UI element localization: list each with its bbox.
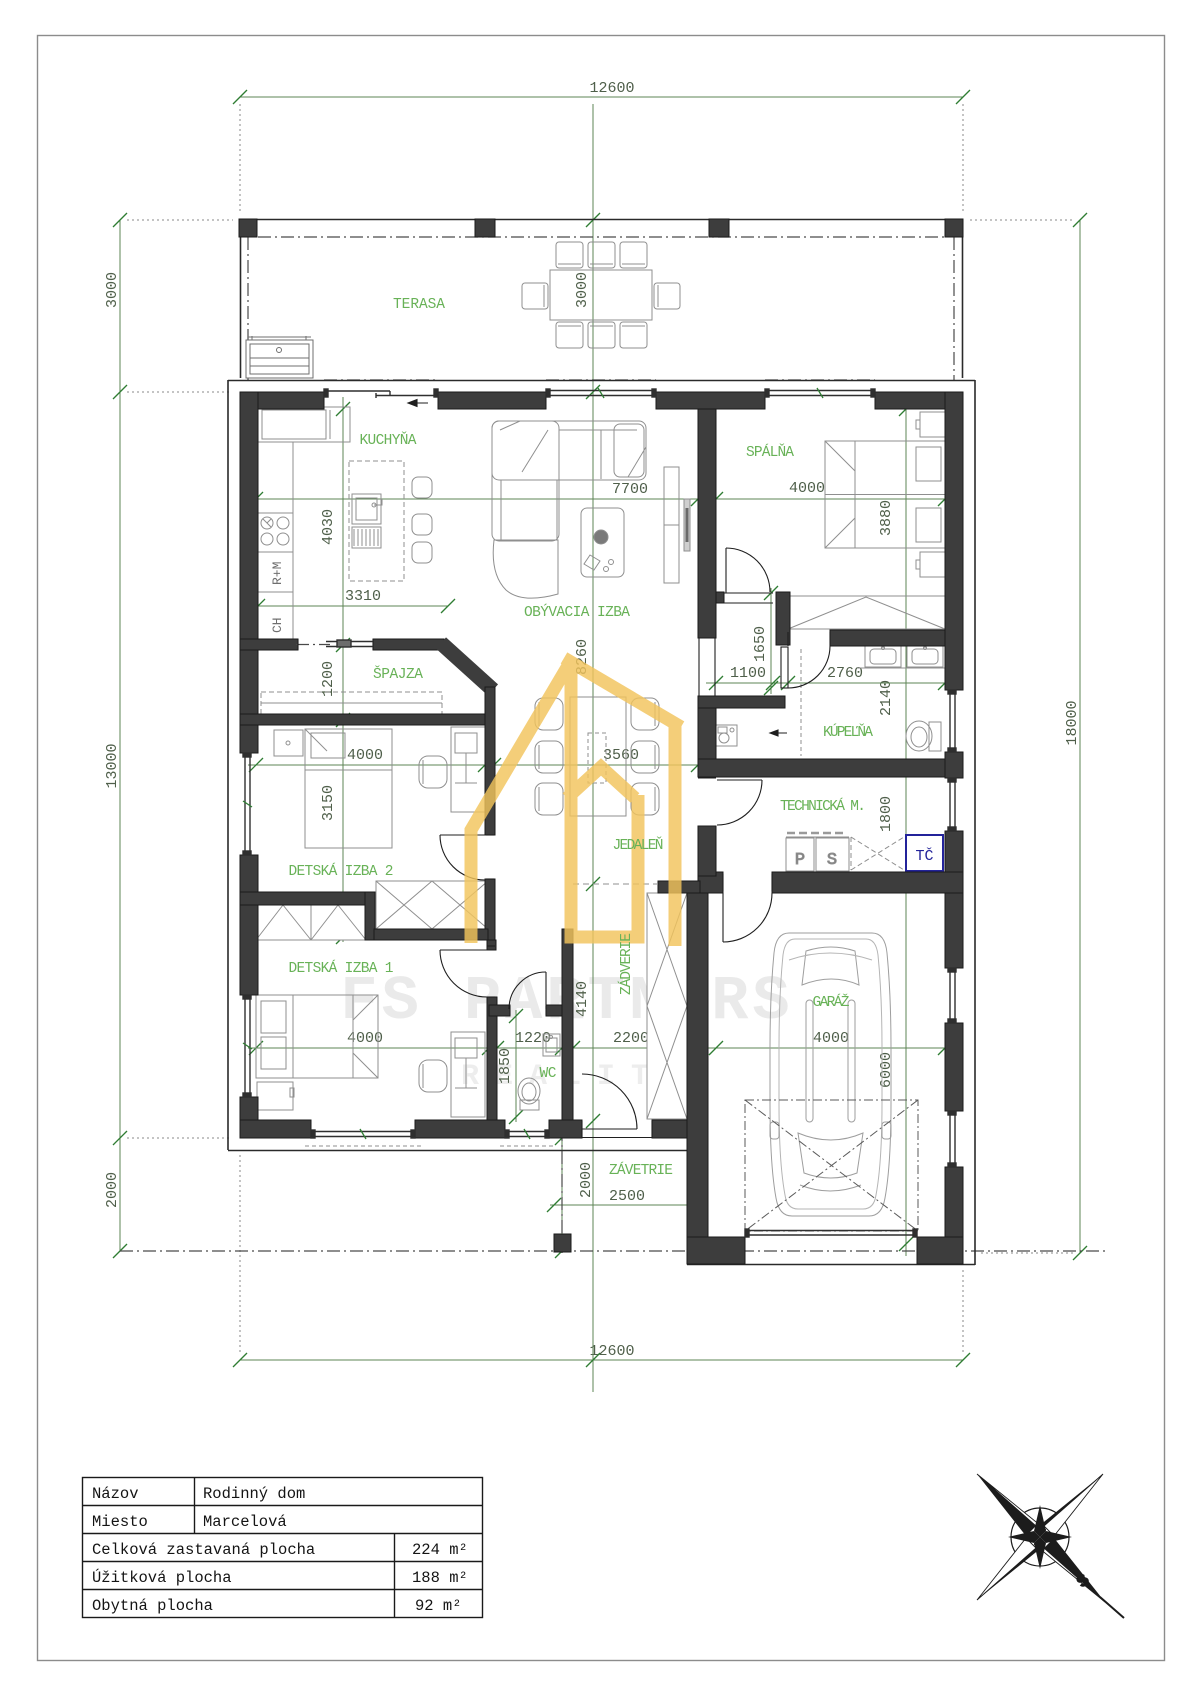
svg-text:CH: CH [270, 617, 285, 633]
svg-text:4000: 4000 [813, 1030, 849, 1047]
svg-text:224 m²: 224 m² [412, 1541, 468, 1559]
svg-text:TČ: TČ [915, 847, 933, 865]
svg-text:ŠPAJZA: ŠPAJZA [373, 665, 423, 683]
svg-text:2000: 2000 [578, 1162, 595, 1198]
svg-text:1100: 1100 [730, 665, 766, 682]
svg-text:KUCHYŇA: KUCHYŇA [360, 431, 417, 449]
svg-text:P: P [795, 851, 805, 870]
svg-text:4000: 4000 [347, 747, 383, 764]
svg-text:188 m²: 188 m² [412, 1569, 468, 1587]
svg-text:13000: 13000 [104, 743, 121, 788]
svg-text:GARÁŽ: GARÁŽ [813, 993, 850, 1011]
svg-text:1800: 1800 [878, 796, 895, 832]
svg-text:18000: 18000 [1064, 700, 1081, 745]
svg-text:92 m²: 92 m² [415, 1597, 462, 1615]
svg-text:SPÁLŇA: SPÁLŇA [746, 443, 794, 461]
svg-text:3000: 3000 [104, 272, 121, 308]
svg-text:ZÁVETRIE: ZÁVETRIE [609, 1161, 673, 1179]
svg-text:R+M: R+M [270, 562, 285, 585]
svg-text:2500: 2500 [609, 1188, 645, 1205]
svg-text:3560: 3560 [603, 747, 639, 764]
svg-text:Obytná plocha: Obytná plocha [92, 1597, 213, 1615]
svg-text:3310: 3310 [345, 588, 381, 605]
svg-text:ZÁDVERIE: ZÁDVERIE [617, 933, 635, 995]
svg-text:DETSKÁ IZBA 2: DETSKÁ IZBA 2 [289, 862, 394, 880]
svg-text:3150: 3150 [320, 785, 337, 821]
svg-text:1850: 1850 [497, 1048, 514, 1084]
svg-text:Celková zastavaná plocha: Celková zastavaná plocha [92, 1541, 315, 1559]
svg-text:DETSKÁ IZBA 1: DETSKÁ IZBA 1 [289, 959, 394, 977]
svg-text:1650: 1650 [752, 626, 769, 662]
svg-text:4000: 4000 [789, 480, 825, 497]
svg-text:6000: 6000 [878, 1052, 895, 1088]
svg-text:Rodinný dom: Rodinný dom [203, 1485, 305, 1503]
svg-text:Názov: Názov [92, 1485, 139, 1503]
svg-text:4030: 4030 [320, 509, 337, 545]
svg-text:7700: 7700 [612, 481, 648, 498]
svg-text:Marcelová: Marcelová [203, 1513, 287, 1531]
svg-text:Úžitková plocha: Úžitková plocha [92, 1569, 232, 1587]
svg-text:2140: 2140 [878, 680, 895, 716]
svg-text:KÚPEĽŇA: KÚPEĽŇA [823, 723, 873, 741]
svg-text:TERASA: TERASA [393, 297, 445, 313]
svg-text:JEDALEŇ: JEDALEŇ [613, 836, 664, 854]
svg-text:S: S [827, 851, 837, 870]
svg-text:12600: 12600 [589, 80, 634, 97]
svg-text:OBÝVACIA IZBA: OBÝVACIA IZBA [524, 603, 630, 621]
svg-text:Miesto: Miesto [92, 1513, 148, 1531]
svg-text:3000: 3000 [574, 272, 591, 308]
svg-text:WC: WC [540, 1066, 557, 1082]
svg-text:4140: 4140 [574, 981, 591, 1017]
svg-text:2000: 2000 [104, 1172, 121, 1208]
svg-text:2200: 2200 [613, 1030, 649, 1047]
svg-text:TECHNICKÁ M.: TECHNICKÁ M. [780, 797, 866, 815]
svg-text:3880: 3880 [878, 500, 895, 536]
